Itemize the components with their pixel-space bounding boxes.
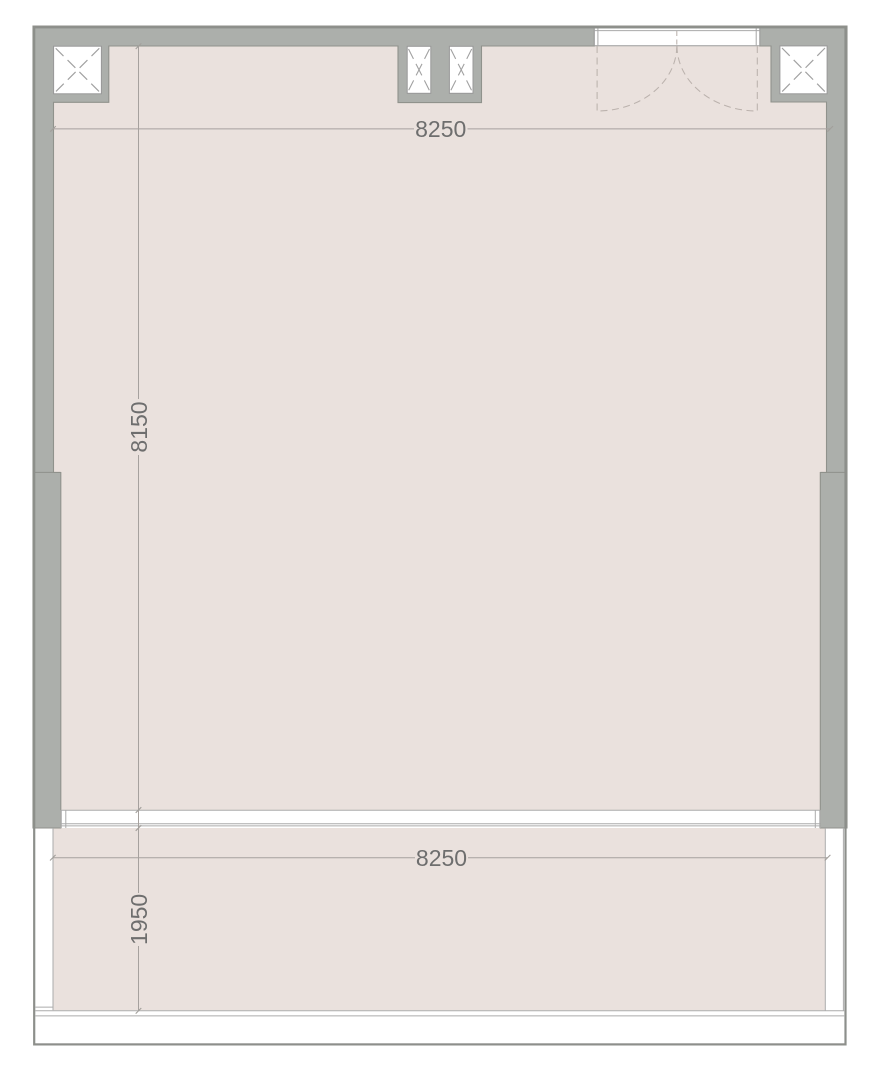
- svg-text:8250: 8250: [416, 845, 467, 871]
- svg-text:8150: 8150: [126, 401, 152, 452]
- svg-text:8250: 8250: [415, 116, 466, 142]
- svg-text:1950: 1950: [126, 894, 152, 945]
